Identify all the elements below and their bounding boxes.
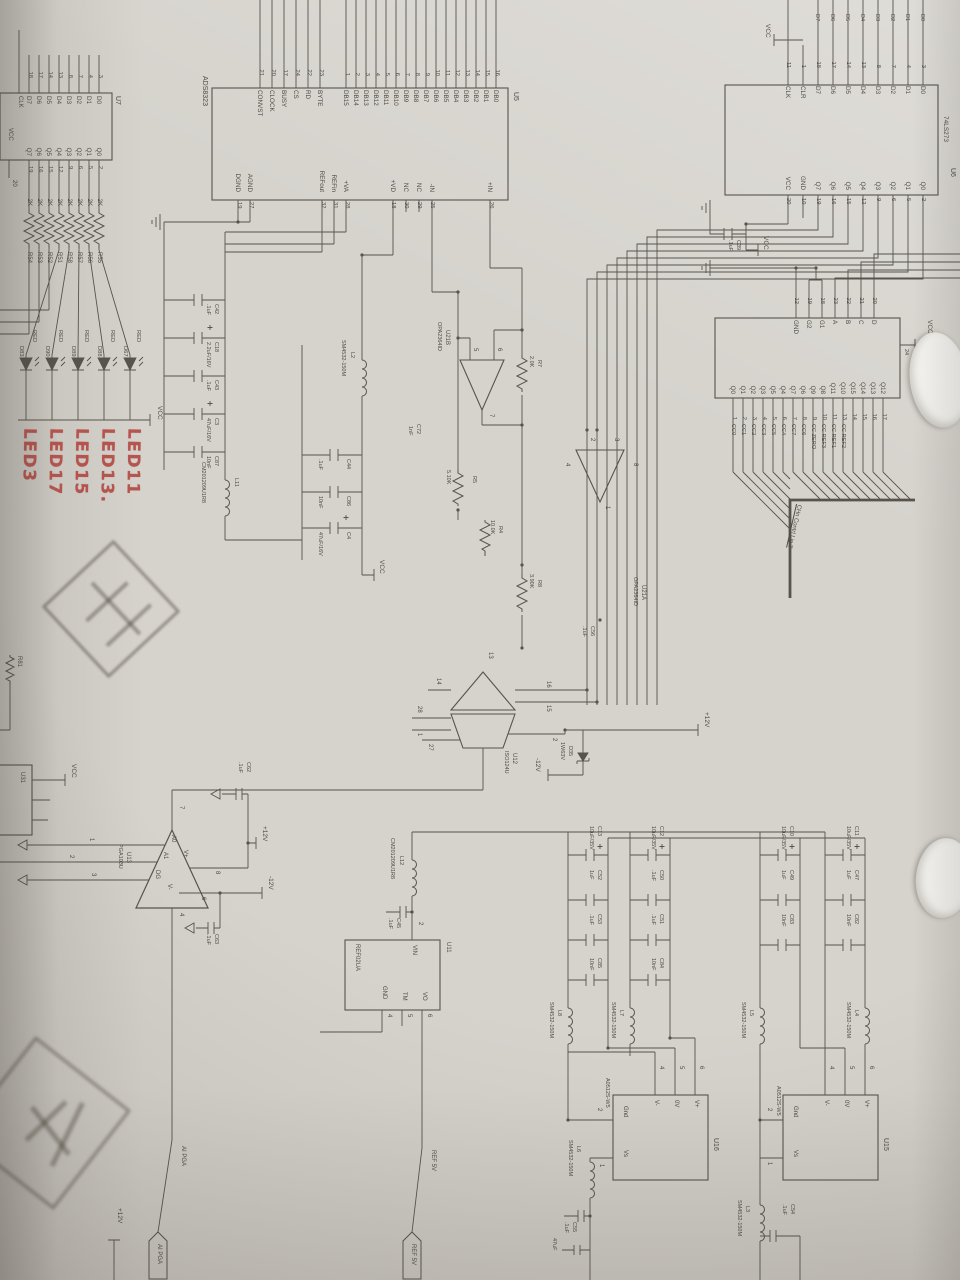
pin-label: D2 [76, 96, 83, 104]
r4-val: 10.0K [489, 520, 495, 534]
pin-number: 13 [57, 60, 63, 78]
net-label: CC REF1 [830, 424, 836, 448]
pin-number: 15 [484, 56, 490, 76]
ref5v-wire-label: REF 5V [430, 1150, 436, 1171]
u15-n2: 2 [766, 1108, 772, 1111]
c54-val: .1uF [781, 1204, 787, 1215]
pin-number: 12 [454, 56, 460, 76]
pin-label: D4 [56, 96, 63, 104]
l3-ref: L3 [744, 1206, 750, 1212]
pin-label: Q14 [860, 336, 867, 394]
pin-number: 15 [846, 198, 852, 218]
u15-n4: 4 [828, 1066, 834, 1069]
pin-number: 16 [494, 56, 500, 76]
pin-label: D4 [859, 86, 866, 94]
l11-ref: L11 [233, 478, 239, 487]
pin-label: REFin [331, 140, 338, 192]
l6-ref: L6 [575, 1146, 581, 1152]
pin-number: 23 [833, 284, 839, 304]
r7-ref: R7 [536, 360, 542, 367]
cap-val: 10uF/35V [779, 826, 787, 870]
u13-n6: 6 [200, 897, 206, 900]
c87-ref: C87 [213, 456, 219, 466]
vcc-flag-u6: VCC [764, 24, 771, 38]
u12-pin2: 2 [551, 738, 557, 741]
net-label: D1 [905, 14, 911, 21]
pin-number: 5 [87, 166, 93, 182]
pin-label: B [844, 320, 851, 324]
pin-number: 19 [27, 166, 33, 182]
pin-label: D1 [904, 86, 911, 94]
pin-label: D7 [26, 96, 33, 104]
led-color-label: RED [109, 330, 115, 342]
resistor-value: 2K [66, 184, 72, 206]
pin-label: C [857, 320, 864, 325]
u16-n1: 1 [598, 1164, 604, 1167]
pin-label: Q9 [810, 336, 817, 394]
pin-label: +IN [487, 140, 494, 192]
cap-ref: C85 [595, 958, 603, 1002]
pin-label: GND [792, 320, 799, 334]
pin-number: 2 [921, 198, 927, 218]
led-color-label: RED [83, 330, 89, 342]
u15-vp: V+ [863, 1100, 869, 1108]
u12-pin28: 28 [416, 706, 422, 713]
pin-number: 10 [801, 198, 807, 218]
pin-label: DGND [235, 140, 242, 192]
l4-val: SM4532-150M [845, 1002, 851, 1038]
net-label: CC REF2 [840, 424, 846, 448]
pin-label: Q4 [859, 146, 866, 190]
u11-part: REF02UA [354, 944, 360, 971]
resistor-ref: R57 [76, 252, 82, 263]
u13-n1: 1 [88, 838, 94, 841]
pin-number: 6 [394, 56, 400, 76]
resistor-ref: R53 [36, 252, 42, 263]
pin-number: 22 [306, 56, 312, 76]
pin-label: DB4 [453, 90, 460, 102]
pin-label: Q6 [829, 146, 836, 190]
pin-number: 30 [404, 202, 410, 220]
pin-label: D6 [829, 86, 836, 94]
cap-val: 10uF/35V [649, 826, 657, 870]
cap-ref: C47 [852, 870, 860, 914]
resistor-ref: R52 [46, 252, 52, 263]
u13-a0: A0 [170, 835, 176, 842]
u10-q-labels: Q12Q13Q14Q15Q10Q11Q8Q9Q6Q7Q4Q5Q3Q2Q1Q0 [728, 336, 888, 394]
u21b-pin-ip: 6 [496, 348, 502, 351]
c86-ref: C86 [345, 496, 351, 506]
net-label: CC3 [760, 424, 766, 435]
bank2-labels: C1210uF/35VC50.1uFC51.1uFC8410nF [647, 826, 665, 1002]
pin-number: 6 [77, 166, 83, 182]
cap-ref: C13 [595, 826, 603, 870]
u15-ref: U15 [882, 1138, 889, 1151]
pin-number: 8 [67, 60, 73, 78]
pin-label: Q7 [814, 146, 821, 190]
pin-number: 5 [906, 198, 912, 218]
c43-val: .1uF [205, 380, 211, 391]
pin-number: 26 [488, 202, 494, 220]
c3-ref: C3 [213, 418, 219, 425]
resistor-value: 2K [86, 184, 92, 206]
u12-pin13: 13 [487, 652, 493, 659]
u13-vp: V+ [182, 850, 188, 858]
u12-pin1: 1 [416, 733, 422, 736]
pin-number: 31 [332, 202, 338, 220]
pin-number: 9 [811, 402, 817, 420]
pin-number: 17 [881, 402, 887, 420]
u21a-pin-vm: 4 [564, 463, 570, 466]
c62-val: .1uF [237, 762, 243, 773]
pin-number: 19 [816, 198, 822, 218]
u11-vo: VO [421, 992, 427, 1001]
c72-val: 1nF [407, 426, 413, 435]
r4-ref: R4 [497, 526, 503, 533]
net-label: CC0 [730, 424, 736, 435]
resistor-ref: R58 [66, 252, 72, 263]
u16-part: A0512S-W5 [604, 1078, 610, 1108]
pin-number: 3 [921, 44, 927, 68]
cap-ref: C53 [595, 914, 603, 958]
l2-ref: L2 [349, 352, 355, 358]
pin-number: 4 [374, 56, 380, 76]
pullup-resistors: 2KR552KR562KR572KR582KR512KR522KR532KR54 [24, 184, 104, 263]
u16-0v: 0V [673, 1100, 679, 1107]
pin-number: 7 [77, 60, 83, 78]
cap-ref: C12 [657, 826, 665, 870]
cap-ref: C11 [852, 826, 860, 870]
resistor-value: 2K [36, 184, 42, 206]
u16-n5: 5 [678, 1066, 684, 1069]
u21a-pin-vp: 8 [632, 463, 638, 466]
pin-number: 14 [846, 44, 852, 68]
bank3-labels: C1010uF/35VC491uFC8310nF [777, 826, 795, 958]
pin-number: 3 [97, 60, 103, 78]
pin-label: DB14 [353, 90, 360, 106]
pin-label: DB6 [433, 90, 440, 102]
u7-ref: U7 [114, 96, 121, 105]
cap-val: 1uF [587, 870, 595, 914]
l4-ref: L4 [853, 1010, 859, 1016]
m12v-flag-zener: -12V [534, 758, 541, 772]
net-label: CC5 [770, 424, 776, 435]
pin-number: 4 [87, 60, 93, 78]
l7-val: SM4532-150M [610, 1002, 616, 1038]
u5-ctrl-pins: 23BYTE22RD24CS17BUSY20CLOCK21CONVST [254, 56, 326, 116]
cap-val: 1uF [779, 870, 787, 914]
u21a-pin-out: 1 [604, 506, 610, 509]
pin-label: DB3 [463, 90, 470, 102]
pin-number: 22 [846, 284, 852, 304]
u10-ctrl-pins: 20D21C22B23A18G119G212GND [789, 284, 880, 334]
u16-gnd: Gnd [622, 1106, 628, 1117]
pin-label: D0 [96, 96, 103, 104]
pin-label: DB11 [383, 90, 390, 105]
u6-part: 74LS273 [942, 116, 949, 142]
u13-vm: V- [166, 884, 172, 890]
u21b-ref: U21B [444, 330, 450, 345]
pin-number: 20 [786, 198, 792, 218]
cap-ref: C10 [787, 826, 795, 870]
cap-val: 10nF [649, 958, 657, 1002]
pin-number: 16 [37, 166, 43, 182]
pin-label: DB5 [443, 90, 450, 102]
c18-val: 2.2uF/16V [205, 342, 211, 367]
cap-val: .1uF [649, 914, 657, 958]
u21a-ref: U21A [640, 585, 646, 600]
resistor-ref: R54 [26, 252, 32, 263]
net-label: CC ZERO [810, 424, 816, 449]
c3-val: 47uF/16V [205, 418, 211, 442]
c56-ref: C56 [589, 626, 595, 636]
pin-label: Q6 [800, 336, 807, 394]
u6-right-pins: Q02Q15Q26Q39Q412Q515Q616Q719GND10VCC20 [780, 146, 930, 218]
u6-bus-net-labels: D0D1D2D3D4D5D6D7 [810, 10, 930, 21]
pin-number: 5 [771, 402, 777, 420]
c42-val: .1uF [205, 304, 211, 315]
pin-number: 4 [906, 44, 912, 68]
cap-ref: C50 [657, 870, 665, 914]
u7-vcc: VCC [7, 128, 13, 141]
u7-left-pins: 3D04D17D28D313D414D517D618D7 [24, 60, 104, 104]
bank4-labels: C1110uF/35VC471uFC8210nF [842, 826, 860, 958]
led-color-label: RED [31, 330, 37, 342]
pin-number: 27 [248, 202, 254, 220]
pin-number: 11 [444, 56, 450, 76]
pin-label: DB10 [393, 90, 400, 106]
pin-number: 14 [851, 402, 857, 420]
pin-number: 8 [801, 402, 807, 420]
r7-val: 2.0K [528, 356, 534, 367]
c72-ref: C72 [415, 424, 421, 434]
c43-ref: C43 [213, 380, 219, 390]
u13-n3: 3 [90, 873, 96, 876]
vcc-flag-analog: VCC [378, 560, 385, 574]
pin-label: Q4 [780, 336, 787, 394]
bank1-labels: C1310uF/35VC521uFC53.1uFC8510nF [585, 826, 603, 1002]
pin-label: Q2 [750, 336, 757, 394]
l5-ref: L5 [748, 1010, 754, 1016]
c63-val: .1uF [205, 934, 211, 945]
pin-label: DB1 [483, 90, 490, 102]
led-color-label: RED [135, 330, 141, 342]
pin-label: D5 [46, 96, 53, 104]
aipga-flag-label: AI PGA [156, 1244, 162, 1264]
pin-label: BUSY [281, 90, 288, 107]
pin-number: 1 [801, 44, 807, 68]
pin-label: DB15 [343, 90, 350, 106]
c44-val: .1uF [317, 459, 323, 470]
pin-number: 10 [434, 56, 440, 76]
pin-number: 7 [891, 44, 897, 68]
pin-number: 18 [391, 202, 397, 220]
pin-number: 3 [364, 56, 370, 76]
pin-label: CLK [784, 86, 791, 98]
u13-n7: 7 [178, 806, 184, 809]
pin-label: CS [293, 90, 300, 99]
net-label: D2 [890, 14, 896, 21]
pin-number: 2 [97, 166, 103, 182]
cap-val: 10nF [779, 914, 787, 958]
pin-number: 11 [831, 402, 837, 420]
pin-number: 17 [282, 56, 288, 76]
c42-ref: C42 [213, 304, 219, 314]
pin-number: 25 [430, 202, 436, 220]
pin-label: Q1 [740, 336, 747, 394]
l12-ref: L12 [398, 856, 404, 865]
l8-ref: L8 [556, 1010, 562, 1016]
pin-label: Q10 [840, 336, 847, 394]
pin-label: BYTE [317, 90, 324, 106]
p12v-flag-u13: +12V [261, 826, 268, 841]
c18-ref: C18 [213, 342, 219, 352]
pin-label: Q4 [56, 124, 63, 156]
pin-label: Q2 [76, 124, 83, 156]
pin-number: 28 [344, 202, 350, 220]
pin-label: Q0 [96, 124, 103, 156]
pin-number: 2 [354, 56, 360, 76]
resistor-value: 2K [96, 184, 102, 206]
vcc-flag-led-rail: VCC [156, 406, 163, 420]
c44-ref: C44 [345, 459, 351, 469]
pin-number: 18 [27, 60, 33, 78]
l6-val: SM4532-150M [567, 1140, 573, 1176]
pin-label: D5 [844, 86, 851, 94]
c55-ref: C55 [571, 1222, 577, 1232]
net-label: D7 [815, 14, 821, 21]
pin-number: 17 [831, 44, 837, 68]
cap-ref: C83 [787, 914, 795, 958]
net-label: D6 [830, 14, 836, 21]
u12-pin15: 15 [545, 705, 551, 712]
u15-gnd: Gnd [792, 1106, 798, 1117]
u5-part: ADS8323 [201, 76, 208, 106]
led-handwritten-label: LED17 [45, 428, 66, 496]
u12-pin16: 16 [545, 681, 551, 688]
u7-right-pins: Q02Q15Q26Q39Q412Q515Q616Q719 [24, 124, 104, 182]
cap-ref: C82 [852, 914, 860, 958]
pin-label: D2 [889, 86, 896, 94]
pin-label: Q8 [820, 336, 827, 394]
u16-vs: Vs [622, 1150, 628, 1157]
u16-vm: V- [653, 1100, 659, 1106]
p12v-flag-bottom: +12V [116, 1208, 123, 1223]
pin-number: 3 [751, 402, 757, 420]
pin-label: D [870, 320, 877, 325]
u16-n2: 2 [596, 1108, 602, 1111]
pin-number: 24 [294, 56, 300, 76]
led-ref: D90 [44, 346, 50, 357]
pin-label: REFout [319, 140, 326, 192]
u15-n5: 5 [848, 1066, 854, 1069]
r5-ref: R5 [471, 476, 477, 483]
pin-number: 10 [821, 402, 827, 420]
u16-ref: U16 [712, 1138, 719, 1151]
c4-val: 47uF/16V [317, 532, 323, 556]
u5-ref: U5 [512, 92, 519, 101]
p12v-flag-u12: +12V [703, 712, 710, 727]
led-handwritten-label: LED15 [71, 428, 92, 496]
led-ref: D67 [122, 346, 128, 357]
cap-val: .1uF [649, 870, 657, 914]
c45-val: .1uF [387, 918, 393, 929]
pin-label: Q5 [46, 124, 53, 156]
pin-label: Q0 [730, 336, 737, 394]
u13-dg: DG [154, 870, 160, 879]
pin-label: Q12 [880, 336, 887, 394]
net-label: CC4 [780, 424, 786, 435]
cap-ref: C51 [657, 914, 665, 958]
l5-val: SM4532-150M [740, 1002, 746, 1038]
net-label: CC7 [790, 424, 796, 435]
r8-val: 3.90K [528, 574, 534, 588]
u13-n2: 2 [68, 855, 74, 858]
pin-label: Q3 [874, 146, 881, 190]
u11-n6: 6 [426, 1014, 432, 1017]
u10-vcc-pin: 24 [903, 349, 909, 355]
pin-label: Q7 [26, 124, 33, 156]
vcc-flag-c39: VCC [762, 236, 769, 250]
pin-label: CLOCK [269, 90, 276, 112]
cap-ref: C52 [595, 870, 603, 914]
pin-number: 29 [417, 202, 423, 220]
cap-val: 10uF/35V [587, 826, 595, 870]
schematic-canvas: U6 74LS273 D0D1D2D3D4D5D6D7 3D04D17D28D3… [0, 0, 960, 1280]
u16-n4: 4 [658, 1066, 664, 1069]
pin-label: DB12 [373, 90, 380, 106]
pin-label: Q3 [66, 124, 73, 156]
net-label: CC6 [800, 424, 806, 435]
cap-val: .1uF [587, 914, 595, 958]
net-label: D4 [860, 14, 866, 21]
pin-label: Q15 [850, 336, 857, 394]
c54-ref: C54 [789, 1204, 795, 1214]
resistor-value: 2K [56, 184, 62, 206]
pin-number: 1 [731, 402, 737, 420]
c39-ref: C39 [735, 240, 741, 250]
pin-label: CONVST [257, 90, 264, 116]
u21a-part: OPA2364ID [632, 577, 638, 606]
c56-val: .1uF [581, 626, 587, 637]
l8-val: SM4532-150M [548, 1002, 554, 1038]
aipga-wire-label: AI PGA [180, 1146, 186, 1166]
pin-number: 13 [861, 44, 867, 68]
pin-number: 15 [47, 166, 53, 182]
net-label: CC2 [750, 424, 756, 435]
pin-label: D3 [66, 96, 73, 104]
pin-number: 12 [794, 284, 800, 304]
cap-val: 10nF [587, 958, 595, 1002]
resistor-value: 2K [46, 184, 52, 206]
u11-gnd: GND [381, 986, 387, 999]
pin-label: A [831, 320, 838, 324]
pin-label: GND [799, 146, 806, 190]
led-ref: D89 [70, 346, 76, 357]
resistor-ref: R51 [56, 252, 62, 263]
pin-label: Q5 [844, 146, 851, 190]
pin-label: D6 [36, 96, 43, 104]
cap-ref: C84 [657, 958, 665, 1002]
u16-vp: V+ [693, 1100, 699, 1108]
pin-label: Q1 [904, 146, 911, 190]
net-label: CC1 [740, 424, 746, 435]
pin-number: 13 [464, 56, 470, 76]
u5-right-mid: -IN25NC29NC30+VD18 [386, 140, 438, 220]
u12-pin14: 14 [435, 678, 441, 685]
pin-label: G1 [818, 320, 825, 328]
pin-number: 7 [791, 402, 797, 420]
